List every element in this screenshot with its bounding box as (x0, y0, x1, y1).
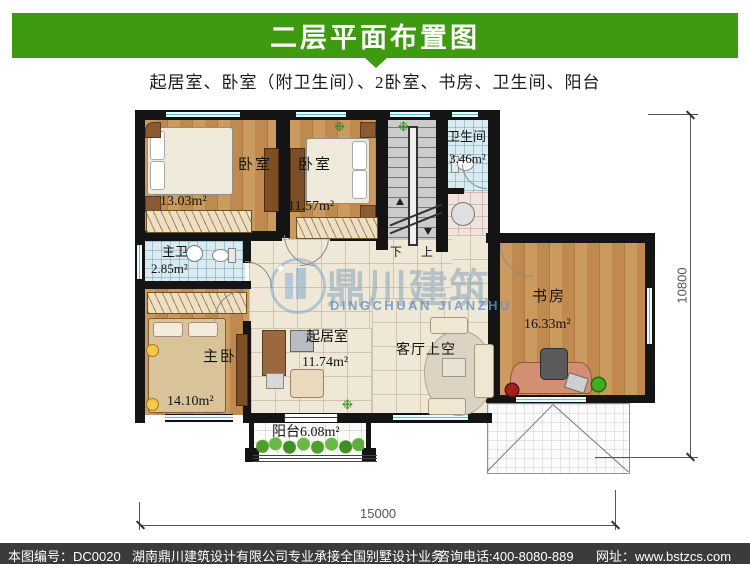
window (452, 111, 478, 119)
shelf (262, 330, 286, 376)
plant-pot (592, 378, 605, 391)
pillow (352, 141, 367, 170)
stair-up-label: 上 (421, 246, 433, 258)
page-subtitle: 起居室、卧室（附卫生间）、2卧室、书房、卫生间、阳台 (0, 68, 750, 93)
window (390, 111, 430, 119)
stair-arrow-up-icon (424, 228, 432, 235)
room-area: 13.03m² (160, 195, 207, 209)
tv-cabinet (236, 334, 248, 406)
room-area: 16.33m² (524, 318, 571, 332)
dimension-line-right (690, 115, 691, 458)
window (166, 111, 240, 119)
wall (486, 233, 655, 243)
window (136, 245, 144, 279)
bedside-lamp (146, 344, 159, 357)
washbasin (451, 202, 475, 226)
washbasin (186, 245, 203, 262)
coffee-table (442, 358, 466, 377)
room-label: 阳台6.08m² (272, 426, 340, 440)
room-label: 主卧 (203, 350, 237, 365)
window (516, 396, 586, 403)
extension-line (595, 457, 698, 458)
wall (135, 281, 251, 289)
room-area: 11.57m² (288, 200, 334, 214)
pillow (352, 170, 367, 199)
room-label: 书房 (532, 290, 566, 305)
wall (243, 241, 251, 263)
dimension-height: 10800 (675, 267, 690, 303)
title-banner: 二层平面布置图 (12, 13, 738, 58)
pillow (188, 322, 218, 337)
room-area: 2.85m² (151, 262, 188, 275)
sofa (430, 317, 468, 334)
room-label: 卧室 (298, 158, 332, 173)
toilet-bowl (212, 249, 229, 262)
dimension-line-bottom (140, 525, 616, 526)
plant-icon: ❉ (342, 398, 353, 411)
nightstand (360, 122, 376, 138)
window (165, 414, 233, 422)
plant-icon: ❉ (398, 120, 409, 133)
stair-down-label: 下 (390, 246, 402, 258)
room-area: 14.10m² (167, 395, 214, 409)
floor-plan-page: 二层平面布置图 起居室、卧室（附卫生间）、2卧室、书房、卫生间、阳台 (0, 0, 750, 564)
stair-rail (408, 126, 418, 246)
plant-icon: ❉ (334, 120, 345, 133)
sofa (428, 398, 466, 415)
footer-phone: 咨询电话:400-8080-889 (437, 546, 574, 564)
stair-arrow-down-icon (396, 198, 404, 205)
window (646, 288, 654, 344)
side-table (266, 373, 284, 389)
room-label: 起居室 (306, 331, 348, 345)
banner-pointer-icon (365, 58, 387, 68)
plant-pot (506, 384, 518, 396)
page-title: 二层平面布置图 (270, 16, 480, 55)
footer-bar: 本图编号：DC0020 湖南鼎川建筑设计有限公司专业承接全国别墅设计业务 咨询电… (0, 543, 750, 564)
wall (446, 188, 464, 194)
bedside-lamp (146, 398, 159, 411)
room-area: 3.46m² (449, 152, 486, 165)
room-area: 11.74m² (302, 356, 348, 370)
armchair (290, 369, 324, 398)
balcony-railing (253, 455, 377, 463)
pillow (150, 161, 165, 190)
balcony-sliding-door (284, 414, 338, 422)
pillow (153, 322, 183, 337)
room-label: 卧室 (238, 158, 272, 173)
room-label: 卫生间 (447, 130, 486, 143)
footer-drawing-no: 本图编号：DC0020 (8, 546, 121, 564)
dimension-width: 15000 (360, 506, 396, 521)
room-label: 客厅上空 (396, 344, 456, 358)
roof-plan (487, 403, 630, 474)
window (296, 111, 346, 119)
toilet (228, 248, 236, 263)
sofa (474, 344, 494, 398)
nightstand (145, 122, 161, 138)
footer-site: 网址：www.bstzcs.com (596, 546, 731, 564)
wardrobe (146, 210, 252, 233)
footer-company: 湖南鼎川建筑设计有限公司专业承接全国别墅设计业务 (132, 546, 444, 564)
room-label: 主卫 (162, 245, 188, 258)
desk-chair (540, 348, 568, 380)
